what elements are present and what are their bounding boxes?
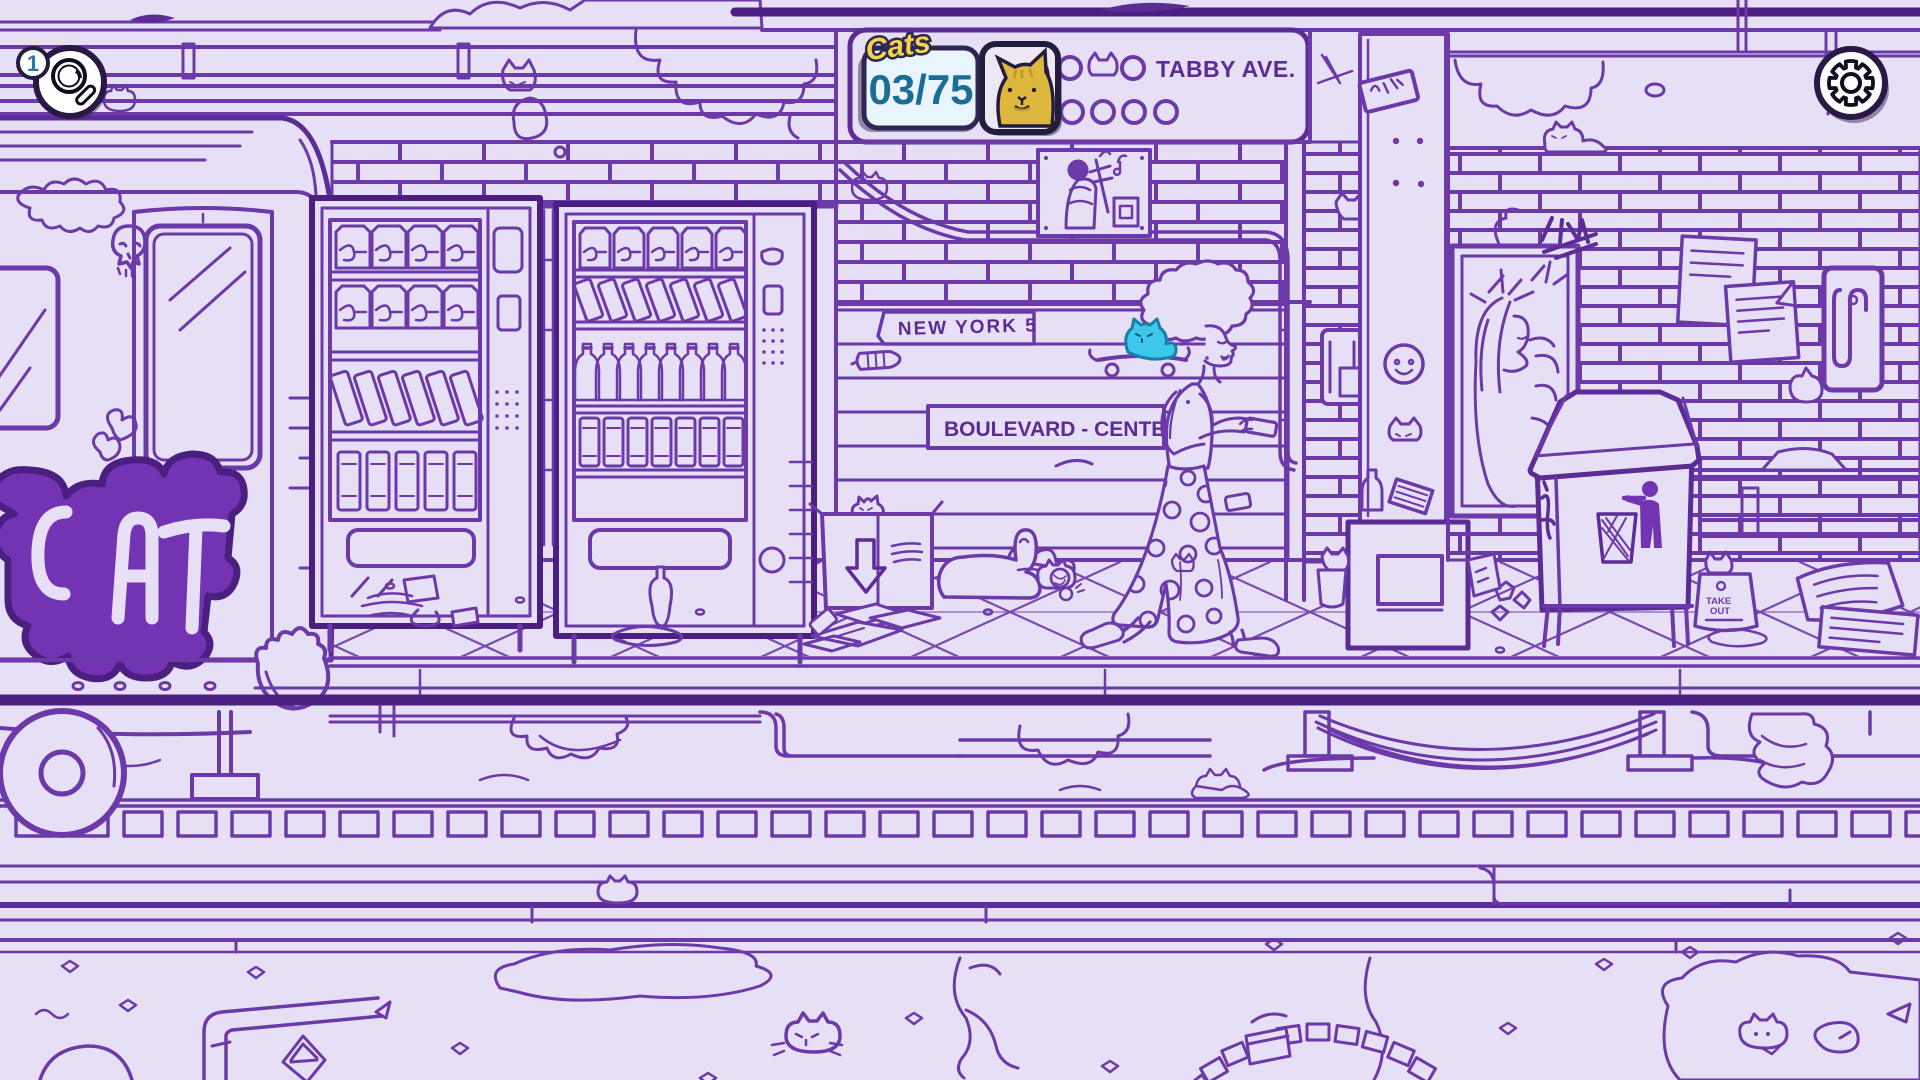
svg-text:NEW YORK 5: NEW YORK 5: [898, 315, 1039, 340]
svg-text:TABBY AVE.: TABBY AVE.: [1156, 56, 1296, 82]
svg-text:03/75: 03/75: [868, 66, 973, 113]
svg-text:BOULEVARD - CENTER: BOULEVARD - CENTER: [944, 418, 1180, 441]
svg-text:OUT: OUT: [1710, 606, 1730, 617]
svg-text:1: 1: [27, 51, 39, 76]
